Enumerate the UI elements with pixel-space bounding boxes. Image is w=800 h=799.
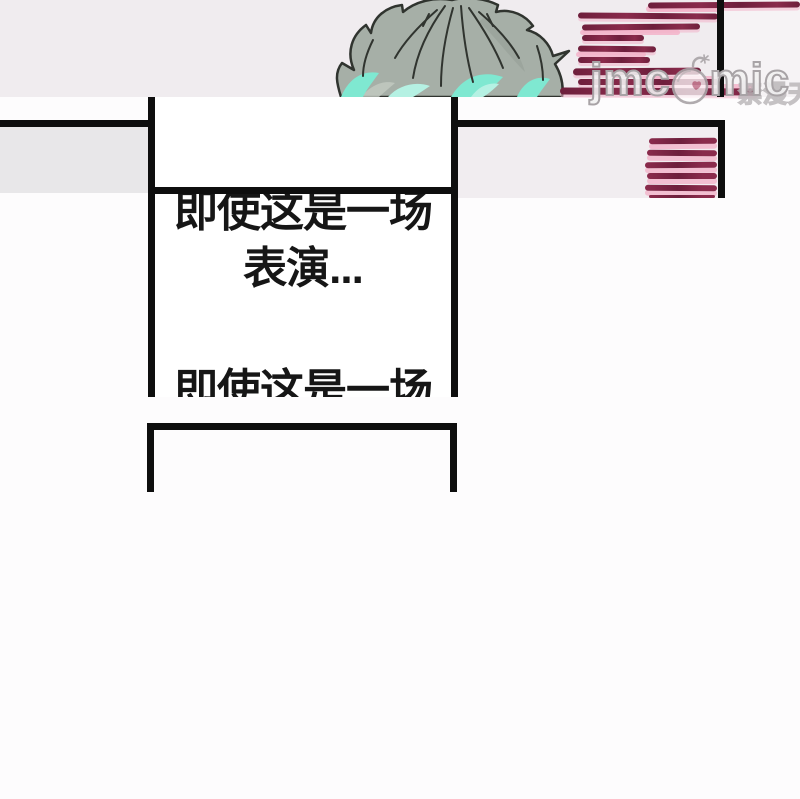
watermark-text-right: mic [710,54,791,106]
hatch-stroke [649,138,717,145]
middle-panel-right-border [451,97,458,397]
hatch-stroke [578,13,718,20]
hatch-stroke [645,185,717,192]
right-panel-right-border [718,120,725,198]
middle-panel-white-box [155,97,451,187]
hatch-stroke [582,23,700,30]
comic-page: jmc mic 禁漫天堂 即使这是一场 表演... 即使这是一场 [0,0,800,799]
left-panel-fill [0,127,148,193]
bottom-box-right-border [450,423,457,492]
watermark: jmc mic [590,44,800,106]
speech-line: 即使这是一场 [155,362,451,397]
speech-line: 表演... [155,240,451,297]
hatch-stroke [647,150,717,156]
bottom-box-top-border [147,423,457,430]
hatch-stroke [647,173,717,179]
left-panel-top-border [0,120,148,127]
bomb-mascot-icon [669,54,713,108]
character-hair-illustration [333,0,580,97]
hatch-stroke [582,35,644,41]
speech-text-block-1: 即使这是一场 表演... [155,183,451,297]
speech-text-block-2-clip: 即使这是一场 [155,362,451,397]
hatch-stroke [649,195,715,198]
right-panel-top-border [451,120,725,127]
hatch-stroke [645,162,717,169]
middle-panel-left-border [148,97,155,397]
bottom-box-left-border [147,423,154,492]
watermark-text-left: jmc [590,54,671,106]
middle-panel-box-bottom-border [148,187,458,194]
